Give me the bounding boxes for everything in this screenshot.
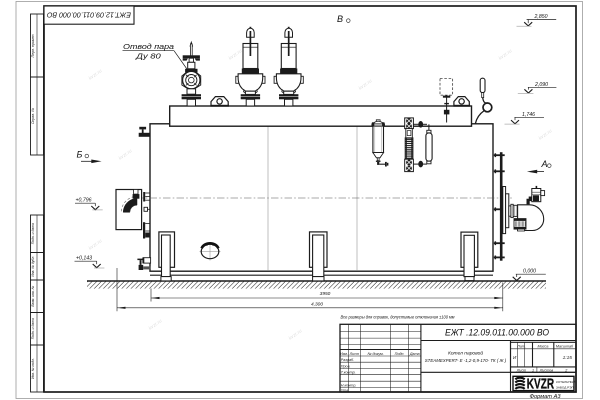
svg-text:ЗАВОД РЭП: ЗАВОД РЭП [556,385,574,389]
svg-text:Взам. инв. №: Взам. инв. № [31,285,35,306]
svg-text:ЕЖТ .12.09.011.00.000 ВО: ЕЖТ .12.09.011.00.000 ВО [445,327,550,338]
svg-text:Т.контр.: Т.контр. [341,371,356,375]
svg-text:Листов: Листов [539,368,554,372]
svg-text:+0,796: +0,796 [75,197,91,203]
svg-text:Утв.: Утв. [341,388,349,392]
svg-text:Лит.: Лит. [516,344,526,348]
svg-text:Подп. и дата: Подп. и дата [31,318,35,339]
svg-text:2,850: 2,850 [534,14,548,20]
svg-text:А: А [541,159,548,169]
svg-text:Справ. №: Справ. № [31,108,35,124]
svg-text:ЕЖТ.12.09.011.00.000 ВО: ЕЖТ.12.09.011.00.000 ВО [46,11,131,18]
svg-text:Масса: Масса [538,344,549,348]
svg-text:2: 2 [564,368,567,372]
svg-text:КОТЕЛЬНЫЙ: КОТЕЛЬНЫЙ [556,380,575,384]
svg-text:STEAMEXPERT- Е -1,2-0,9-170- Т: STEAMEXPERT- Е -1,2-0,9-170- ТК ( Ж ) [425,358,507,363]
svg-text:№ докум.: № докум. [367,352,383,356]
svg-text:1,746: 1,746 [522,112,535,118]
svg-text:Перв. примен.: Перв. примен. [31,34,35,58]
svg-text:Н.контр.: Н.контр. [341,383,357,387]
svg-text:Пров.: Пров. [341,364,351,368]
svg-text:1:15: 1:15 [563,355,573,361]
svg-text:1: 1 [532,368,534,372]
svg-text:Инв. № дубл.: Инв. № дубл. [31,256,35,277]
svg-text:Подп.: Подп. [395,352,405,356]
svg-text:Б: Б [77,150,83,160]
svg-text:Все размеры для справок, допу: Все размеры для справок, допустимые откл… [341,315,455,320]
svg-text:4,300: 4,300 [311,301,323,307]
svg-text:+0,143: +0,143 [76,256,92,262]
svg-text:Лист: Лист [349,352,360,356]
svg-text:Дата: Дата [409,352,420,356]
svg-text:Масштаб: Масштаб [556,344,574,348]
svg-text:В: В [337,14,343,24]
svg-text:Подп. и дата: Подп. и дата [31,223,35,244]
svg-text:Отвод пара: Отвод пара [123,43,174,51]
svg-text:Формат А3: Формат А3 [530,394,561,400]
svg-text:3950: 3950 [320,291,331,297]
svg-text:KVZR: KVZR [527,377,555,393]
svg-text:Инв. № подл.: Инв. № подл. [31,358,35,379]
svg-text:Разраб.: Разраб. [341,358,354,362]
svg-text:Лист: Лист [516,368,527,372]
svg-text:Котел паровой: Котел паровой [448,349,483,356]
svg-text:0,000: 0,000 [523,268,536,274]
svg-text:Изм.: Изм. [340,352,348,356]
svg-text:Ду 80: Ду 80 [135,53,161,60]
